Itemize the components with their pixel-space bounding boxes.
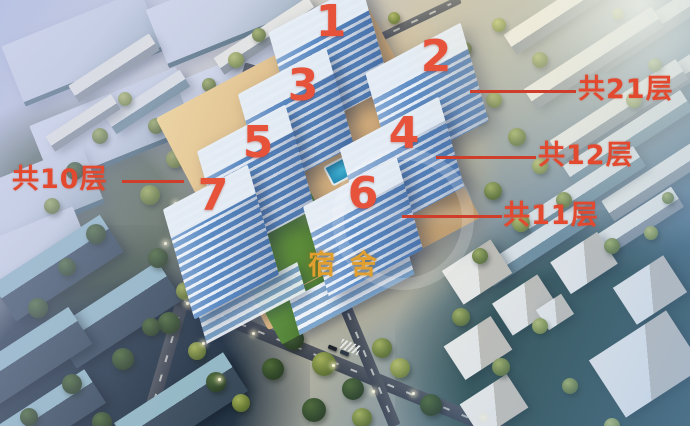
tree [508,128,526,146]
street-light [412,392,415,395]
tree [486,92,502,108]
street-light [252,332,255,335]
tree [262,358,284,380]
tree [452,308,470,326]
building-number-5: 5 [243,121,274,165]
tree [532,318,548,334]
street-light [482,416,485,419]
tree [644,226,658,240]
street-light [164,242,167,245]
tree [44,198,60,214]
tree [648,58,662,72]
tree [662,192,674,204]
tree [28,298,48,318]
street-light [372,390,375,393]
tree [158,312,180,334]
tree [232,394,250,412]
dorm-label: 宿舍 [308,252,392,279]
tree [472,248,488,264]
building-number-4: 4 [389,112,420,156]
tree [612,8,624,20]
tree [252,28,266,42]
street-light [218,378,221,381]
tree [604,418,620,426]
tree [140,185,160,205]
tree [228,52,244,68]
tree [420,394,442,416]
leader-line-11-floors [402,215,502,218]
floor-label-10: 共10层 [12,166,108,193]
tree [342,378,364,400]
leader-line-21-floors [470,90,576,93]
tree [372,338,392,358]
tree [92,412,112,426]
tree [20,408,38,426]
tree [92,128,108,144]
tree [142,318,160,336]
aerial-rendering: 1 2 3 4 5 6 7 共21层 共12层 共10层 共11层 宿舍 [0,0,690,426]
tree [352,408,372,426]
tree [484,182,502,200]
tree [492,358,510,376]
tree [388,12,400,24]
building-number-3: 3 [288,64,319,108]
street-light [202,342,205,345]
floor-label-12: 共12层 [538,142,634,169]
floor-label-11: 共11层 [503,202,599,229]
floor-label-21: 共21层 [578,76,674,103]
tree [118,92,132,106]
dark-slab [114,352,248,426]
building-number-6: 6 [348,172,379,216]
tree [148,248,168,268]
tree [58,258,76,276]
tree [112,348,134,370]
building-number-7: 7 [198,174,229,218]
building-number-1: 1 [316,0,347,44]
tree [302,398,326,422]
roof-house [589,310,690,417]
car [328,344,338,351]
building-number-2: 2 [421,35,452,79]
tree [86,224,106,244]
roof-house [613,255,687,325]
tree [206,372,226,392]
tree [492,18,506,32]
tree [562,378,578,394]
tree [532,52,548,68]
street-light [332,364,335,367]
leader-line-12-floors [436,156,536,159]
roof-house [460,374,529,426]
tree [62,374,82,394]
tree [390,358,410,378]
leader-line-10-floors [122,180,184,183]
tree [604,238,620,254]
